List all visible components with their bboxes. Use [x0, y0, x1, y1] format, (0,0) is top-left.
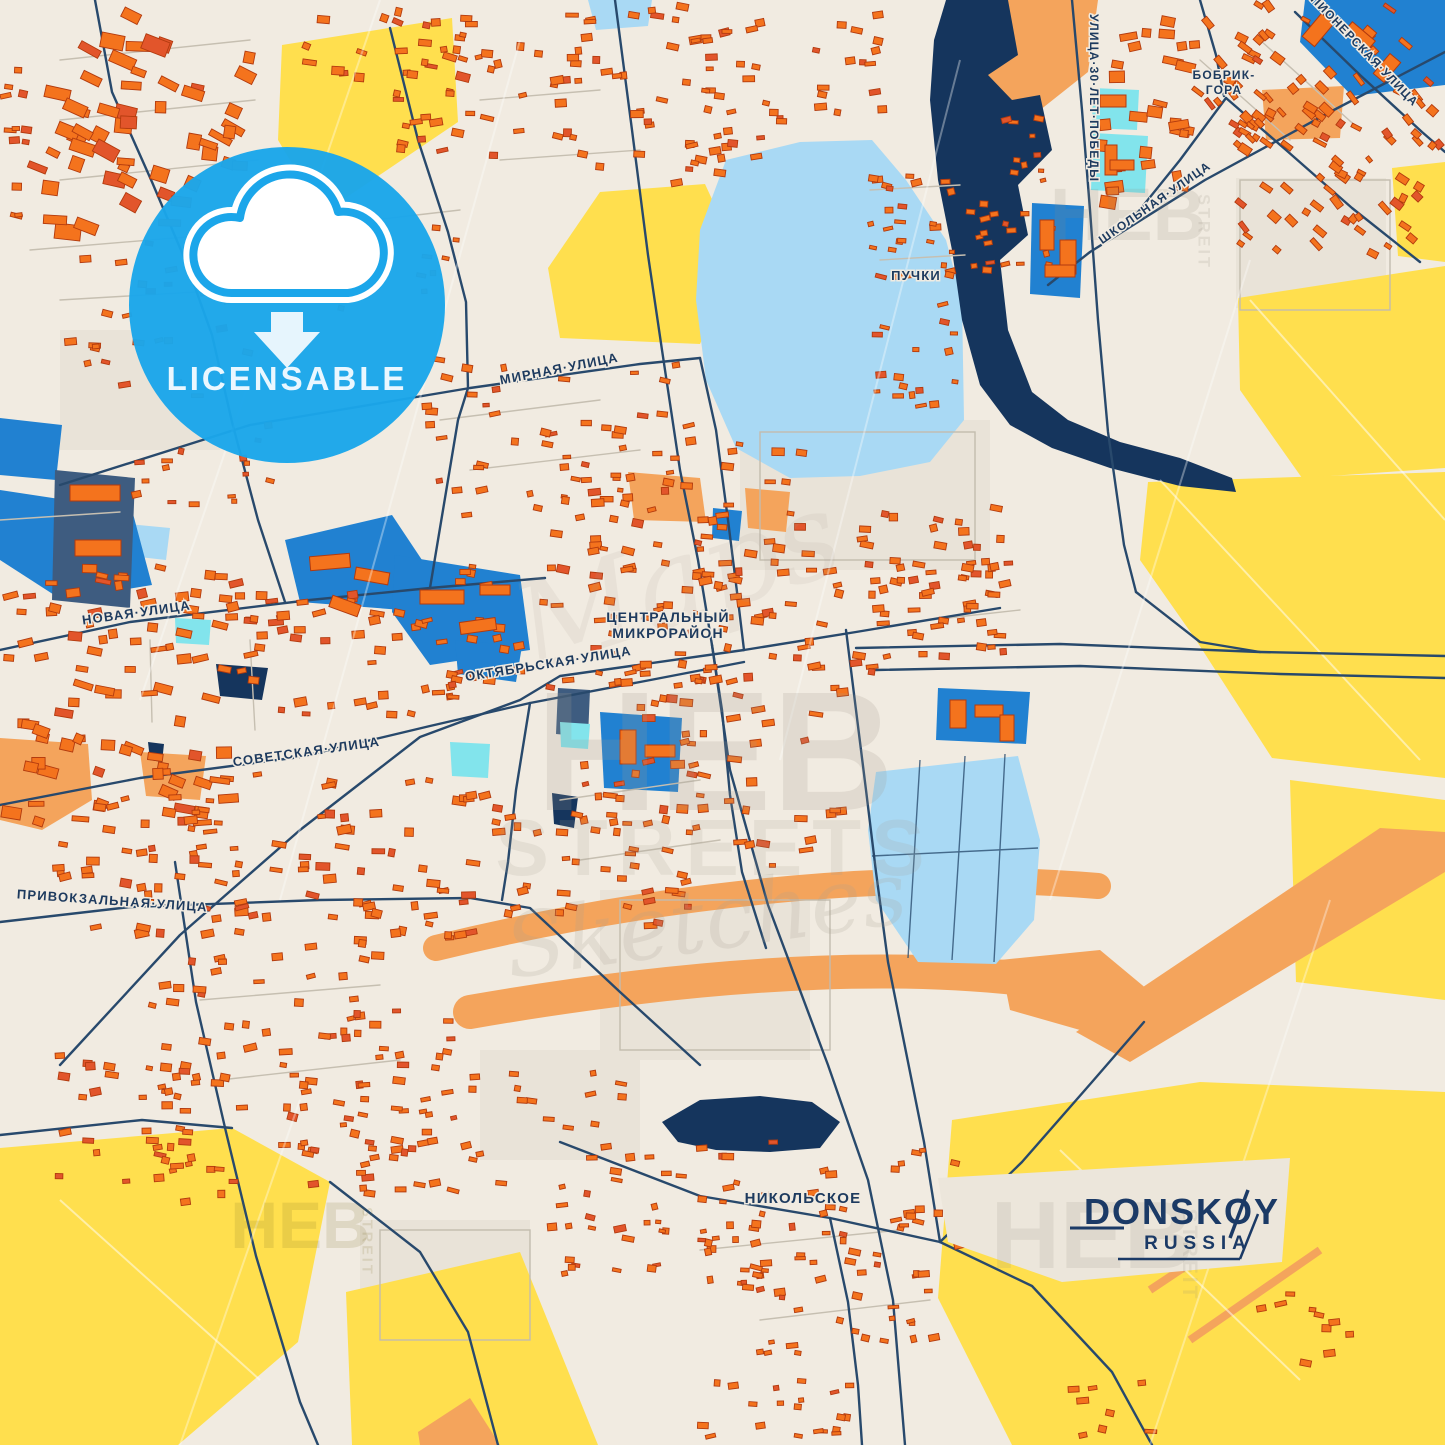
place-label: НИКОЛЬСКОЕ [745, 1190, 862, 1207]
watermark-streit: STREIT [1194, 194, 1212, 270]
country-name: RUSSIA [1144, 1233, 1252, 1254]
map-poster: MapsHEBSTREETSSketchesHEBSTREITHEBSTREIT… [0, 0, 1445, 1445]
map-canvas: MapsHEBSTREETSSketchesHEBSTREITHEBSTREIT… [0, 0, 1445, 1445]
watermark-streit: STREIT [359, 1207, 375, 1277]
place-label: БОБРИК- [1193, 68, 1256, 82]
badge-label: LICENSABLE [167, 360, 408, 397]
place-label: МИКРОРАЙОН [612, 624, 724, 641]
licensable-badge[interactable]: LICENSABLE [129, 147, 445, 463]
place-label: ЦЕНТРАЛЬНЫЙ [606, 608, 730, 625]
place-label: ПУЧКИ [891, 268, 941, 283]
place-label: ГОРА [1206, 83, 1242, 97]
city-name: DONSKOY [1084, 1191, 1280, 1232]
street-label: УЛИЦА·30·ЛЕТ·ПОБЕДЫ [1087, 14, 1101, 182]
watermark-heb: HEB [230, 1188, 369, 1262]
